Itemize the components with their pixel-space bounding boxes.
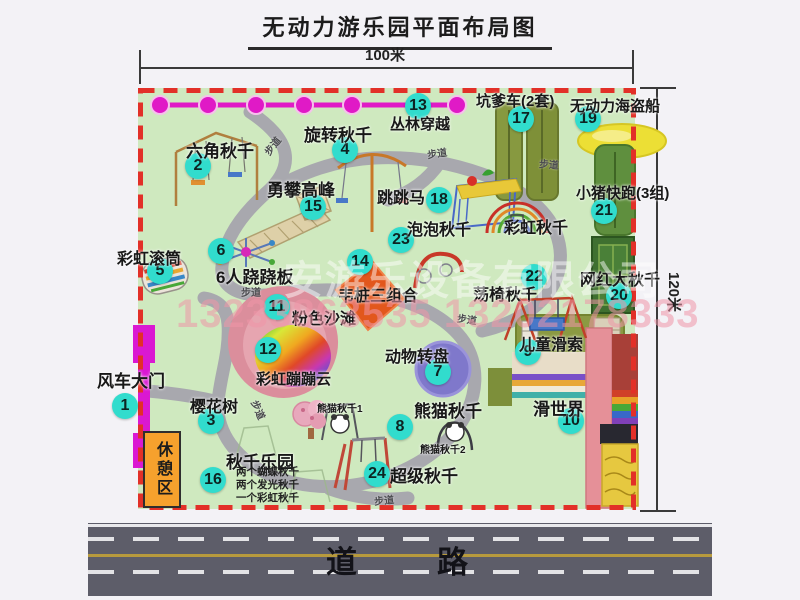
attraction-label-3: 樱花树 — [190, 393, 238, 417]
attraction-badge-6: 6 — [208, 238, 234, 264]
footpath-label-2: 步道 — [539, 155, 560, 171]
attraction-label-7: 动物转盘 — [385, 343, 449, 367]
attraction-badge-18: 18 — [426, 187, 452, 213]
watermark-phone: 13233863535 13202178333 — [176, 292, 700, 337]
plan-canvas: 无动力游乐园平面布局图 100米 120米 — [0, 0, 800, 600]
attraction-label-19: 无动力海盗船 — [570, 95, 660, 116]
footpath-label-5: 步道 — [248, 397, 270, 421]
map-label-0: 彩虹秋千 — [504, 214, 568, 238]
map-label-2: 熊猫秋千2 — [420, 441, 466, 456]
attraction-label-24: 超级秋千 — [390, 462, 458, 487]
attraction-label-13: 丛林穿越 — [390, 113, 450, 134]
attraction-label-12: 彩虹蹦蹦云 — [256, 368, 331, 389]
attraction-label-4: 旋转秋千 — [304, 121, 372, 146]
attraction-label-10: 滑世界 — [533, 395, 584, 420]
attraction-label-17: 坑爹车(2套) — [476, 90, 554, 111]
map-label-1: 熊猫秋千1 — [317, 400, 363, 415]
swing-note-line: 两个发光秋千 — [236, 479, 299, 492]
attraction-label-8: 熊猫秋千 — [414, 397, 482, 422]
swing-park-notes: 两个蝴蝶秋千两个发光秋千一个彩虹秋千 — [236, 466, 299, 505]
attraction-label-18: 跳跳马 — [377, 184, 425, 208]
attraction-label-23: 泡泡秋千 — [407, 216, 471, 240]
attraction-label-21: 小猪快跑(3组) — [576, 182, 669, 203]
attraction-label-1: 风车大门 — [97, 367, 165, 392]
footpath-label-6: 步道 — [373, 491, 394, 508]
swing-note-line: 两个蝴蝶秋千 — [236, 466, 299, 479]
footpath-label-1: 步道 — [426, 144, 448, 162]
footpath-label-0: 步道 — [260, 133, 284, 158]
attraction-badge-24: 24 — [364, 461, 390, 487]
attraction-label-5: 彩虹滚筒 — [117, 245, 181, 269]
attraction-badge-1: 1 — [112, 393, 138, 419]
attraction-badge-16: 16 — [200, 467, 226, 493]
swing-note-line: 一个彩虹秋千 — [236, 492, 299, 505]
attraction-label-15: 勇攀高峰 — [267, 176, 335, 201]
attraction-badge-8: 8 — [387, 414, 413, 440]
attraction-label-2: 六角秋千 — [186, 137, 254, 162]
attraction-badge-12: 12 — [255, 337, 281, 363]
